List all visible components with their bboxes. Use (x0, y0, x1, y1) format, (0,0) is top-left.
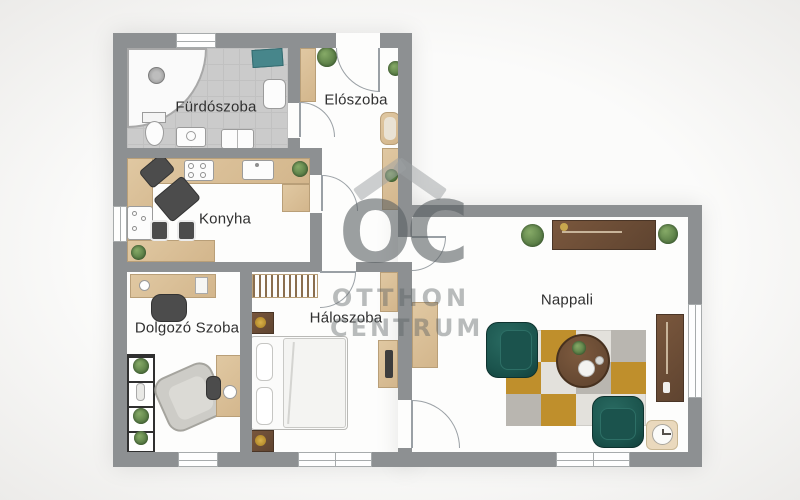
terrace-door-leaf (411, 400, 413, 448)
bar-stool (177, 220, 196, 241)
coffee-cup (139, 280, 150, 291)
wall (310, 148, 322, 175)
bathroom-door-leaf (299, 102, 301, 137)
window (176, 33, 216, 48)
clock-hand-icon (662, 429, 664, 435)
rug-tile (611, 362, 646, 394)
bedroom-wardrobe (252, 274, 318, 298)
hall-wardrobe (300, 48, 316, 102)
wall (398, 205, 702, 217)
bedroom-door-leaf (320, 271, 356, 273)
plant (133, 408, 149, 424)
desk-keyboard (385, 350, 393, 378)
window (556, 452, 630, 467)
pillow (256, 343, 273, 381)
tv-console (656, 314, 684, 402)
pillow (256, 387, 273, 425)
rug-tile (611, 330, 646, 362)
room-label-bathroom: Fürdószoba (175, 99, 256, 116)
window-pane (177, 41, 215, 42)
bath-mat (251, 48, 283, 68)
living-left-cabinet (412, 302, 438, 368)
knob-icon (132, 226, 137, 231)
window (298, 452, 372, 467)
plant (385, 169, 398, 182)
plant (317, 47, 337, 67)
window (688, 304, 702, 398)
plant (572, 341, 586, 355)
window (178, 452, 218, 467)
notebook (195, 277, 208, 294)
sideboard-handle (562, 231, 622, 233)
side-desk-stool (223, 385, 237, 399)
knob-icon (141, 216, 146, 221)
burner-icon (200, 172, 206, 178)
serving-plate (578, 360, 595, 377)
wall (127, 262, 320, 272)
window-mullion (335, 453, 336, 466)
wall (113, 33, 127, 467)
window-pane (695, 305, 696, 397)
sideboard-knob (560, 223, 568, 231)
room-label-bedroom: Háloszoba (310, 310, 383, 327)
faucet-icon (255, 163, 259, 167)
rug-tile (541, 394, 576, 426)
wall (398, 271, 412, 400)
kitchen-door-leaf (321, 175, 323, 211)
entry-door-leaf (378, 48, 380, 92)
burner-icon (188, 172, 194, 178)
window-pane (120, 207, 121, 241)
side-desk-chair (206, 376, 221, 400)
living-door-leaf (412, 236, 446, 238)
bar-stool (150, 220, 169, 241)
bedroom-tall-cabinet (380, 272, 398, 312)
window-mullion (593, 453, 594, 466)
bathroom-sink (263, 79, 286, 109)
table-lamp-icon (255, 435, 266, 446)
window-pane (179, 460, 217, 461)
room-label-living: Nappali (541, 292, 593, 309)
plant (134, 431, 148, 445)
vanity-divider (237, 130, 238, 148)
rug-tile (506, 394, 541, 426)
plant (133, 358, 149, 374)
wall (288, 138, 300, 148)
plant (658, 224, 678, 244)
armchair-seat (600, 408, 636, 440)
room-label-kitchen: Konyha (199, 211, 251, 228)
floor-plan: Fürdószoba Elószoba Konyha Dolgozó Szoba… (0, 0, 800, 500)
room-label-hallway: Elószoba (324, 92, 387, 109)
wall (127, 148, 322, 158)
wall (398, 217, 412, 237)
office-chair (151, 294, 187, 322)
wall (398, 33, 412, 217)
window (113, 206, 127, 242)
room-label-study: Dolgozó Szoba (135, 320, 239, 337)
remote (663, 382, 670, 393)
burner-icon (200, 163, 206, 169)
armchair-seat (500, 330, 532, 370)
wall (288, 48, 300, 103)
table-lamp-icon (255, 317, 266, 328)
entry-opening (336, 33, 380, 48)
vase (136, 383, 145, 401)
tv-console-handle (666, 322, 668, 374)
plant (521, 224, 544, 247)
burner-icon (188, 163, 194, 169)
plant (131, 245, 146, 260)
cup (595, 356, 604, 365)
kitchen-counter-right (282, 184, 310, 212)
hall-mirror-glass (384, 117, 396, 140)
plant (292, 161, 308, 177)
wall (398, 448, 412, 456)
shower-head-icon (148, 67, 165, 84)
washing-machine-door-icon (186, 131, 196, 141)
wall (240, 262, 252, 452)
knob-icon (132, 211, 137, 216)
